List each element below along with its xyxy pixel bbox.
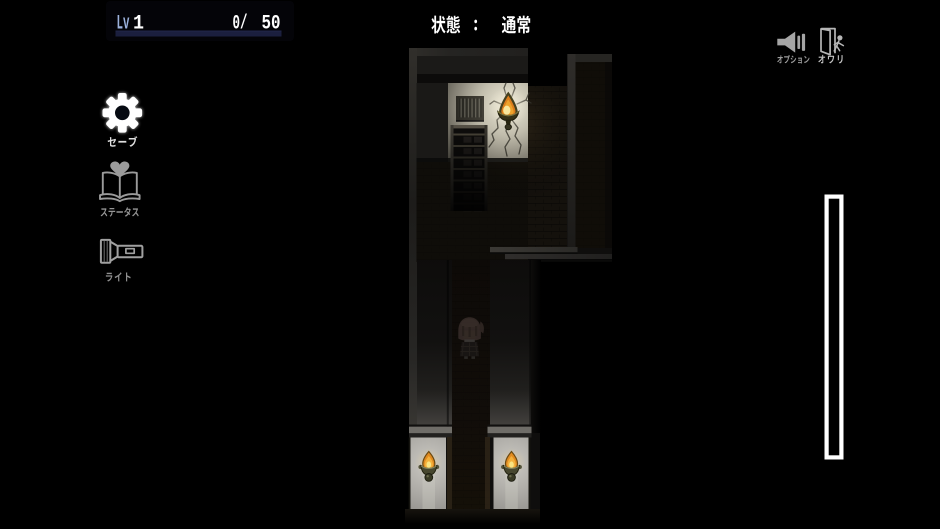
svg-text:Lv: Lv xyxy=(117,13,130,36)
svg-text:1: 1 xyxy=(133,13,144,36)
svg-text:50: 50 xyxy=(262,13,281,36)
svg-text:0/: 0/ xyxy=(233,13,248,36)
